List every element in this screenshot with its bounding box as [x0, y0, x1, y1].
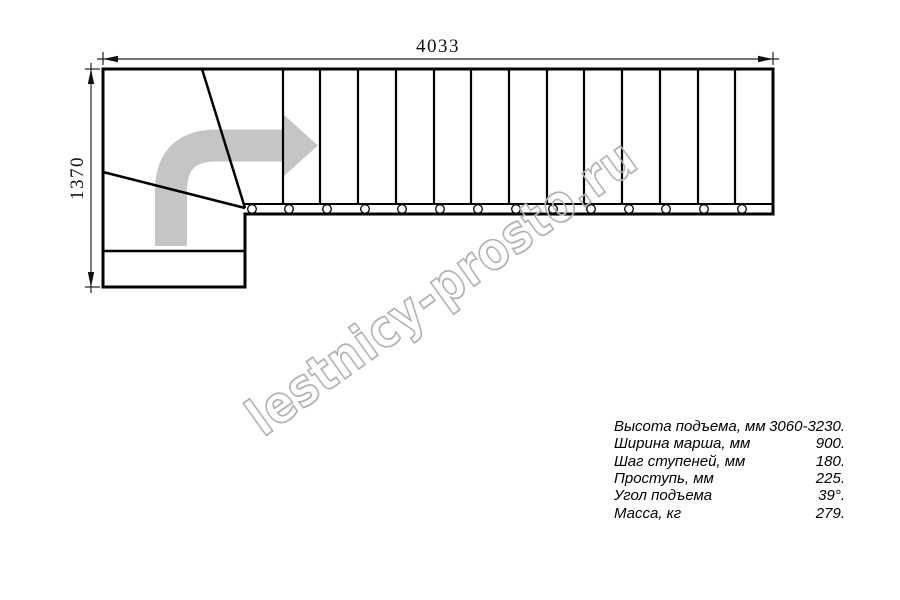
post-circle — [474, 205, 483, 214]
post-circle — [436, 205, 445, 214]
dimension-arrowhead-left — [103, 56, 118, 62]
spec-row-tread: Проступь, мм 225. — [614, 470, 845, 487]
spec-value: 279. — [816, 505, 845, 522]
dimension-arrowhead-bottom — [88, 272, 94, 287]
post-circle — [738, 205, 747, 214]
tread-lines — [283, 69, 735, 204]
post-circle — [285, 205, 294, 214]
spec-row-rise-angle: Угол подъема 39°. — [614, 487, 845, 504]
post-circle — [700, 205, 709, 214]
spec-row-rise-height: Высота подъема, мм 3060-3230. — [614, 418, 845, 435]
spec-row-flight-width: Ширина марша, мм 900. — [614, 435, 845, 452]
post-circle — [398, 205, 407, 214]
post-circle — [323, 205, 332, 214]
spec-value: 180. — [816, 453, 845, 470]
spec-label: Шаг ступеней, мм — [614, 453, 745, 470]
post-circle — [662, 205, 671, 214]
watermark-text: lestnicy-prosto.ru — [236, 128, 649, 448]
spec-value: 225. — [816, 470, 845, 487]
post-circle — [625, 205, 634, 214]
post-circle — [361, 205, 370, 214]
spec-label: Угол подъема — [614, 487, 712, 504]
spec-label: Масса, кг — [614, 505, 681, 522]
dimension-arrowhead-right — [758, 56, 773, 62]
spec-label: Проступь, мм — [614, 470, 714, 487]
direction-arrow-shaft — [171, 146, 284, 247]
post-circle — [248, 205, 257, 214]
total-run-dimension-label: 4033 — [416, 36, 460, 57]
spec-label: Высота подъема, мм — [614, 418, 766, 435]
total-width-dimension-label: 1370 — [67, 156, 88, 200]
spec-table: Высота подъема, мм 3060-3230. Ширина мар… — [614, 418, 845, 522]
spec-value: 900. — [816, 435, 845, 452]
spec-value: 3060-3230. — [769, 418, 845, 435]
direction-arrow-head — [284, 115, 318, 176]
spec-value: 39°. — [818, 487, 845, 504]
dimension-arrowhead-top — [88, 69, 94, 84]
spec-row-mass: Масса, кг 279. — [614, 505, 845, 522]
spec-row-step-pitch: Шаг ступеней, мм 180. — [614, 453, 845, 470]
spec-label: Ширина марша, мм — [614, 435, 750, 452]
